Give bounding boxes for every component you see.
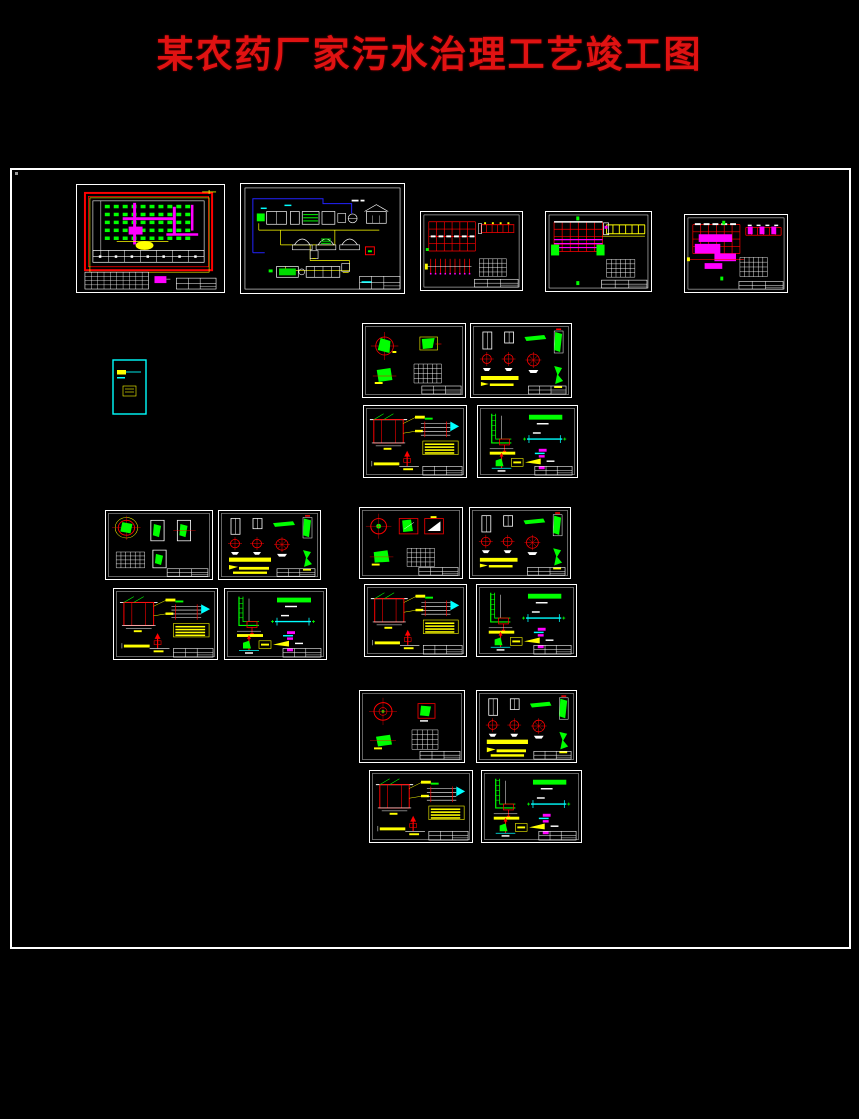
drawing-sheet-02-process-flow bbox=[240, 183, 405, 294]
sheet-graphics bbox=[114, 589, 217, 659]
sheet-graphics bbox=[546, 212, 651, 291]
sheet-graphics bbox=[471, 324, 571, 397]
drawing-sheet-21-detail-frame-4 bbox=[369, 770, 473, 843]
sheet-graphics bbox=[370, 771, 472, 842]
sheet-graphics bbox=[363, 324, 465, 397]
sheet-graphics bbox=[477, 585, 576, 656]
drawing-sheet-16-detail-channel-2 bbox=[224, 588, 327, 660]
drawing-sheet-09-detail-frame-1 bbox=[363, 405, 467, 478]
drawing-sheet-17-detail-frame-3 bbox=[364, 584, 467, 657]
cad-preview-page: 某农药厂家污水治理工艺竣工图 bbox=[0, 0, 859, 1119]
sheet-graphics bbox=[106, 511, 212, 579]
drawing-sheet-03-rebar-layout-1 bbox=[420, 211, 523, 291]
sheet-graphics bbox=[110, 358, 149, 417]
drawing-sheet-14-detail-bars-3 bbox=[469, 507, 571, 579]
drawing-sheet-05-rebar-layout-3 bbox=[684, 214, 788, 293]
drawing-sheet-08-detail-bars-1 bbox=[470, 323, 572, 398]
sheet-graphics bbox=[365, 585, 466, 656]
drawing-sheet-11-detail-circles-2 bbox=[105, 510, 213, 580]
drawing-sheet-01-plant-plan bbox=[76, 184, 225, 293]
sheet-graphics bbox=[478, 406, 577, 477]
page-title: 某农药厂家污水治理工艺竣工图 bbox=[0, 24, 859, 78]
sheet-graphics bbox=[360, 508, 462, 578]
sheet-graphics bbox=[482, 771, 581, 842]
drawing-sheet-04-rebar-layout-2 bbox=[545, 211, 652, 292]
drawing-sheet-20-detail-bars-4 bbox=[476, 690, 577, 763]
drawing-sheet-10-detail-channel-1 bbox=[477, 405, 578, 478]
sheet-graphics bbox=[685, 215, 787, 292]
drawing-sheet-18-detail-channel-3 bbox=[476, 584, 577, 657]
sheet-graphics bbox=[241, 184, 404, 293]
drawing-sheet-22-detail-channel-4 bbox=[481, 770, 582, 843]
sheet-graphics bbox=[225, 589, 326, 659]
drawing-sheet-13-detail-circles-3 bbox=[359, 507, 463, 579]
sheet-graphics bbox=[364, 406, 466, 477]
drawing-sheet-19-detail-circles-4 bbox=[359, 690, 465, 763]
drawing-sheet-15-detail-frame-2 bbox=[113, 588, 218, 660]
sheet-graphics bbox=[360, 691, 464, 762]
drawing-sheet-07-detail-circles-1 bbox=[362, 323, 466, 398]
sheet-graphics bbox=[77, 185, 224, 292]
sheet-graphics bbox=[477, 691, 576, 762]
canvas-corner-mark bbox=[15, 172, 18, 175]
sheet-graphics bbox=[421, 212, 522, 290]
drawing-sheet-12-detail-bars-2 bbox=[218, 510, 321, 580]
sheet-graphics bbox=[470, 508, 570, 578]
drawing-sheet-06-note-sheet bbox=[110, 358, 149, 417]
sheet-graphics bbox=[219, 511, 320, 579]
